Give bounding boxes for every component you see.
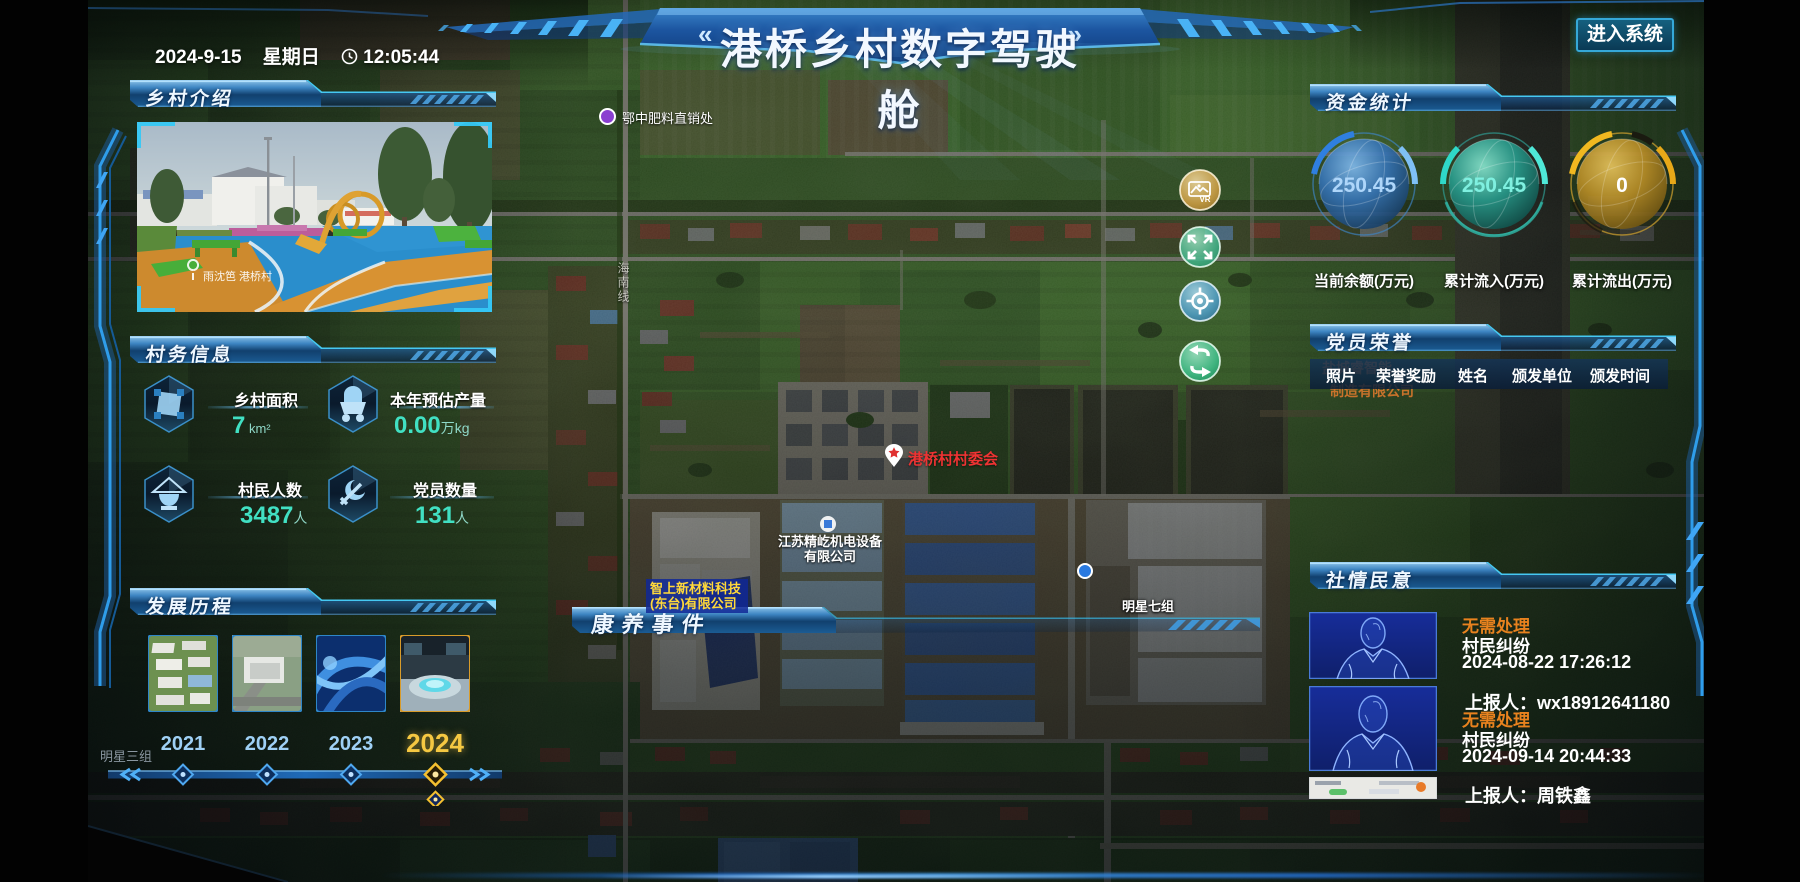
svg-text:0: 0 xyxy=(1616,174,1628,197)
svg-text:250.45: 250.45 xyxy=(1462,174,1527,197)
svg-text:VR: VR xyxy=(1199,195,1210,204)
svg-text:250.45: 250.45 xyxy=(1332,174,1397,197)
svg-text:雨沈笆 港桥村: 雨沈笆 港桥村 xyxy=(203,269,272,283)
